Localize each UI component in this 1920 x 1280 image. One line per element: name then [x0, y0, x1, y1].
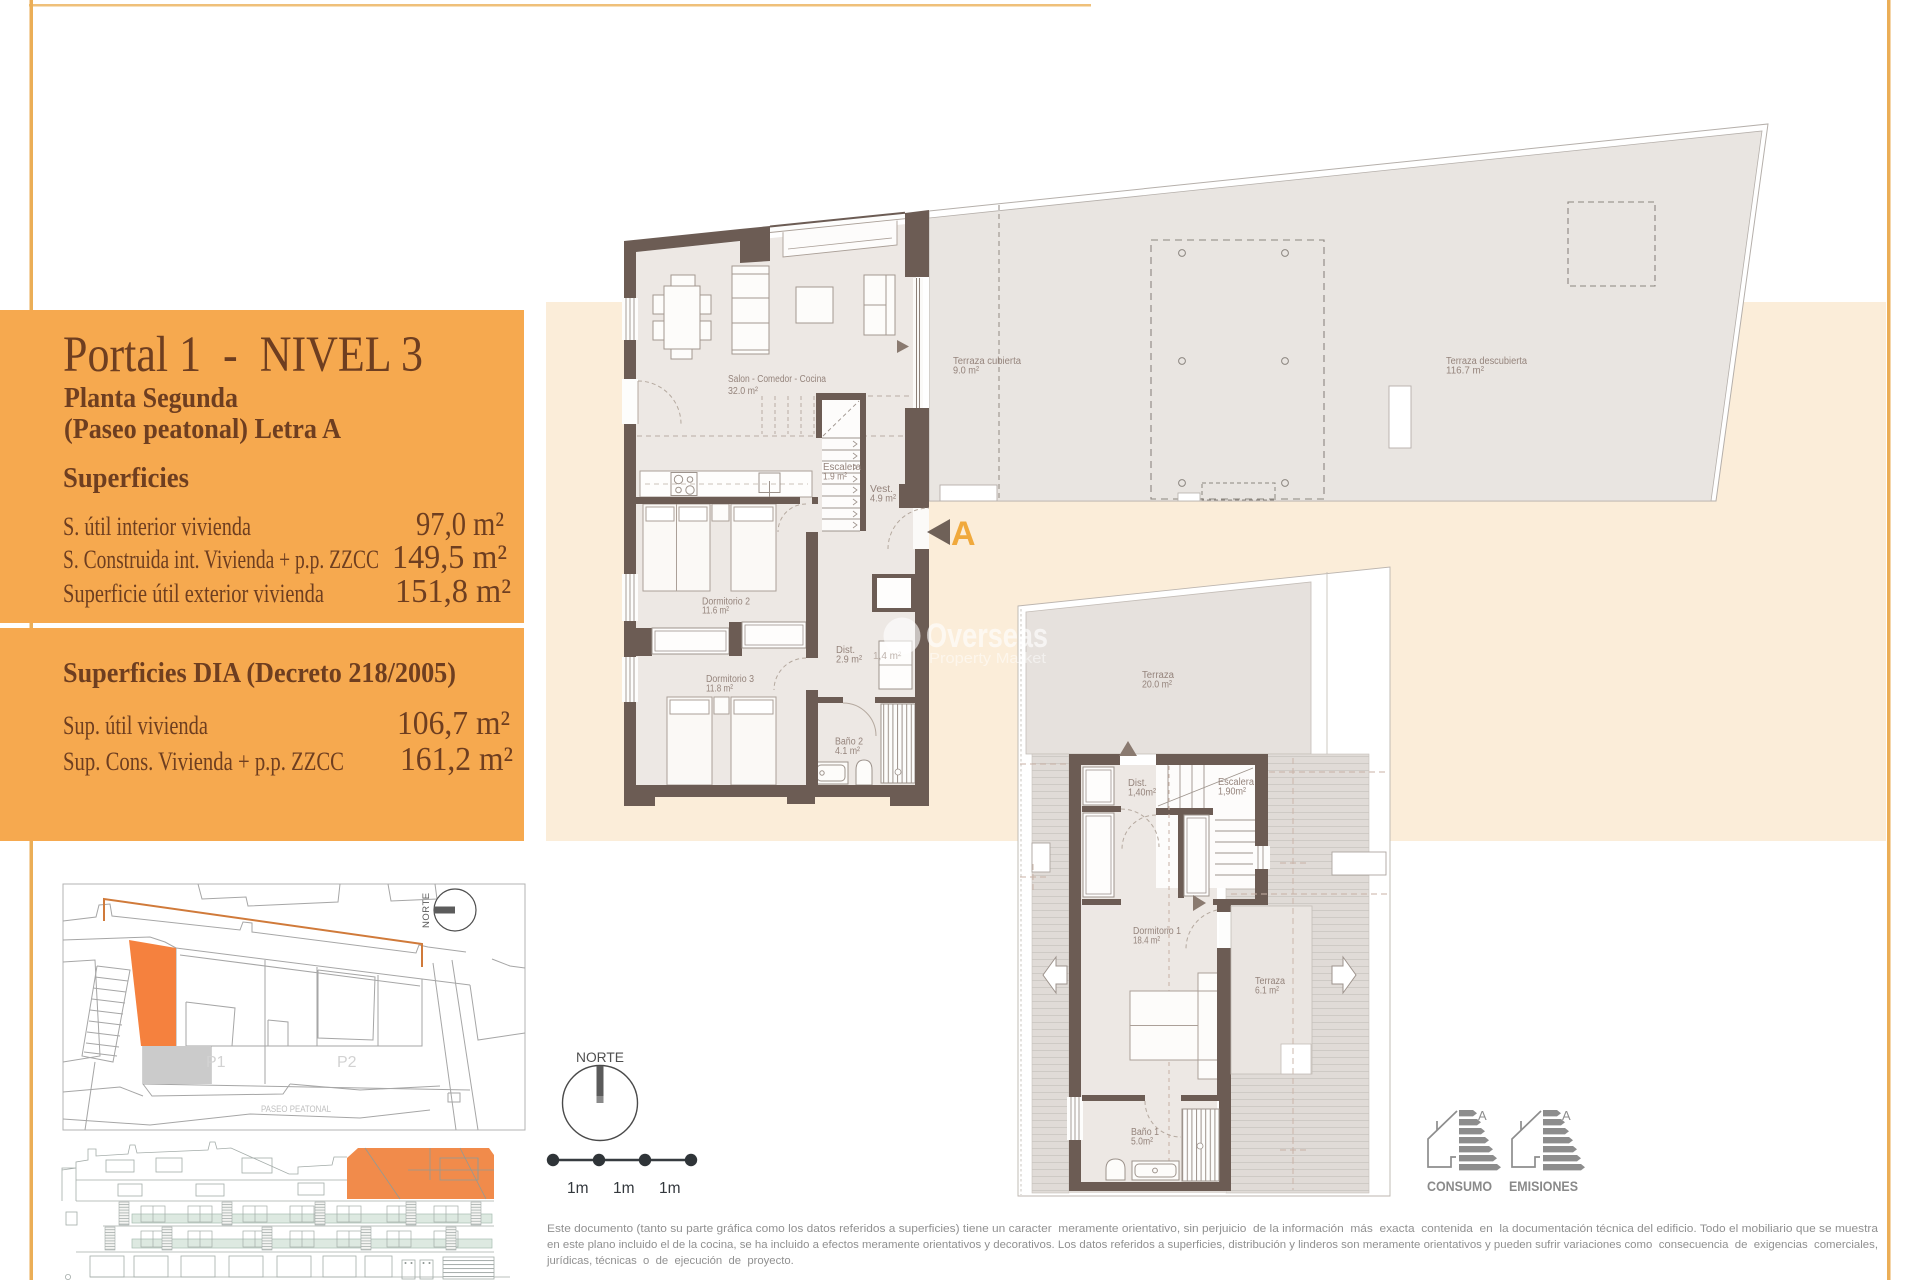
svg-text:PASEO PEATONAL: PASEO PEATONAL	[261, 1104, 331, 1115]
svg-text:S. útil interior vivienda: S. útil interior vivienda	[63, 512, 251, 541]
svg-text:20.0 m²: 20.0 m²	[1142, 680, 1173, 691]
svg-text:A: A	[951, 515, 976, 553]
svg-text:P2: P2	[337, 1054, 357, 1071]
svg-text:11.6 m²: 11.6 m²	[702, 606, 730, 617]
svg-text:32.0 m²: 32.0 m²	[728, 386, 759, 397]
svg-text:Planta Segunda: Planta Segunda	[64, 383, 238, 414]
svg-text:97,0 m²: 97,0 m²	[416, 506, 504, 543]
svg-text:Portal 1 - NIVEL 3: Portal 1 - NIVEL 3	[63, 327, 423, 383]
svg-text:149,5 m²: 149,5 m²	[392, 539, 507, 576]
svg-text:1m: 1m	[659, 1180, 681, 1197]
svg-text:Sup. útil vivienda: Sup. útil vivienda	[63, 711, 208, 740]
svg-text:6.1 m²: 6.1 m²	[1255, 986, 1280, 997]
svg-text:jurídicas, técnicas o de ej: jurídicas, técnicas o de ejecución de pr…	[546, 1255, 794, 1267]
svg-text:106,7 m²: 106,7 m²	[397, 705, 510, 742]
svg-text:Superficie útil exterior vivie: Superficie útil exterior vivienda	[63, 579, 324, 608]
svg-text:A: A	[1562, 1108, 1571, 1123]
svg-text:Property Market: Property Market	[929, 650, 1047, 667]
svg-text:1,90m²: 1,90m²	[1218, 787, 1247, 798]
svg-text:Este documento (tanto su parte: Este documento (tanto su parte gráfica c…	[547, 1223, 1879, 1235]
svg-text:9.0 m²: 9.0 m²	[953, 366, 980, 377]
svg-text:4.1 m²: 4.1 m²	[835, 746, 861, 757]
svg-text:151,8 m²: 151,8 m²	[395, 573, 511, 610]
svg-text:NORTE: NORTE	[421, 892, 432, 928]
svg-text:1m: 1m	[613, 1180, 635, 1197]
svg-text:5.0m²: 5.0m²	[1131, 1137, 1154, 1148]
svg-text:S. Construida int. Vivienda +: S. Construida int. Vivienda + p.p. ZZCC	[63, 545, 379, 574]
svg-text:116.7 m²: 116.7 m²	[1446, 366, 1485, 377]
svg-text:1.9 m²: 1.9 m²	[823, 472, 848, 483]
svg-text:18.4 m²: 18.4 m²	[1133, 936, 1161, 947]
svg-text:Sup. Cons. Vivienda + p.p. ZZC: Sup. Cons. Vivienda + p.p. ZZCC	[63, 747, 344, 776]
svg-text:2.9 m²: 2.9 m²	[836, 655, 863, 666]
svg-text:1,40m²: 1,40m²	[1128, 788, 1157, 799]
svg-text:161,2 m²: 161,2 m²	[400, 741, 513, 778]
svg-text:A: A	[1478, 1108, 1487, 1123]
svg-text:EMISIONES: EMISIONES	[1509, 1179, 1578, 1194]
svg-text:Superficies DIA (Decreto 218/2: Superficies DIA (Decreto 218/2005)	[63, 657, 456, 689]
svg-text:1m: 1m	[567, 1180, 589, 1197]
svg-text:en este plano incluido el de l: en este plano incluido el de la cocina, …	[547, 1239, 1878, 1251]
svg-text:(Paseo peatonal) Letra A: (Paseo peatonal) Letra A	[64, 414, 342, 445]
svg-text:4.9 m²: 4.9 m²	[870, 494, 897, 505]
svg-text:CONSUMO: CONSUMO	[1427, 1179, 1492, 1194]
svg-text:P1: P1	[206, 1054, 226, 1071]
svg-text:Salon - Comedor - Cocina: Salon - Comedor - Cocina	[728, 374, 826, 385]
svg-text:Superficies: Superficies	[63, 462, 189, 494]
svg-text:11.8 m²: 11.8 m²	[706, 684, 734, 695]
svg-text:NORTE: NORTE	[576, 1050, 624, 1065]
